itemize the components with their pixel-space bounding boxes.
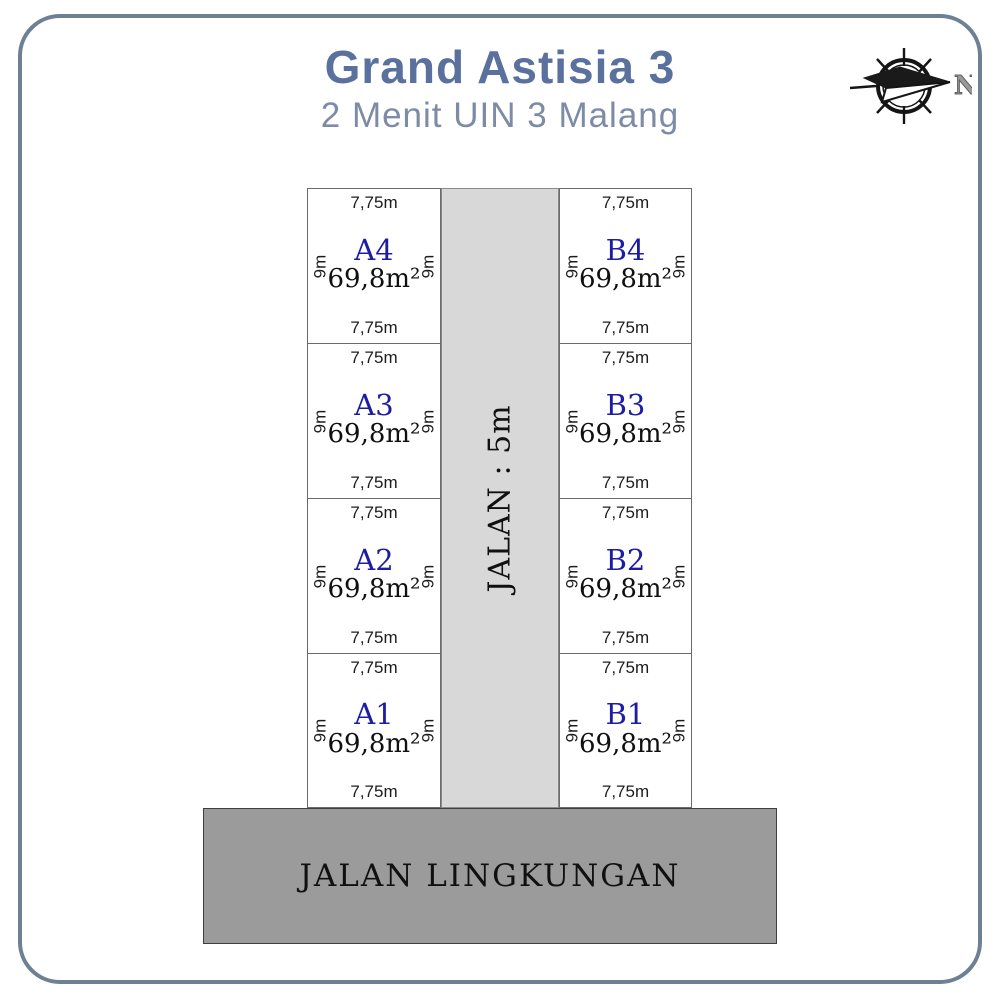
plot-depth-left: 9m <box>312 564 329 588</box>
plot-area: 69,8m² <box>328 575 421 605</box>
plot-area: 69,8m² <box>579 420 672 450</box>
plot-width-top: 7,75m <box>602 659 649 676</box>
plot-a1: 7,75m A1 69,8m² 7,75m 9m 9m <box>307 653 441 808</box>
plot-id: A1 <box>328 699 421 729</box>
plot-depth-right: 9m <box>420 409 437 433</box>
road-vertical-label: JALAN : 5m <box>483 404 518 592</box>
plot-depth-right: 9m <box>420 254 437 278</box>
plot-id: B1 <box>579 699 672 729</box>
plot-id: A4 <box>328 235 421 265</box>
plot-area: 69,8m² <box>328 265 421 295</box>
plot-id: B2 <box>579 545 672 575</box>
plot-area: 69,8m² <box>579 575 672 605</box>
plot-depth-left: 9m <box>564 409 581 433</box>
road-bottom: JALAN LINGKUNGAN <box>203 808 777 944</box>
plot-id: A3 <box>328 390 421 420</box>
plot-area: 69,8m² <box>328 420 421 450</box>
plot-id: B4 <box>579 235 672 265</box>
plot-width-bottom: 7,75m <box>350 629 397 646</box>
plot-depth-right: 9m <box>671 409 688 433</box>
plot-area: 69,8m² <box>579 265 672 295</box>
plot-area: 69,8m² <box>328 730 421 760</box>
site-plan: JALAN : 5m 7,75m A4 69,8m² 7,75m 9m 9m 7… <box>0 0 1000 1000</box>
plot-depth-left: 9m <box>312 409 329 433</box>
plot-width-top: 7,75m <box>350 504 397 521</box>
road-vertical: JALAN : 5m <box>441 188 559 808</box>
plot-width-bottom: 7,75m <box>350 783 397 800</box>
plot-id: A2 <box>328 545 421 575</box>
plot-id: B3 <box>579 390 672 420</box>
plot-depth-right: 9m <box>420 719 437 743</box>
plot-width-top: 7,75m <box>350 349 397 366</box>
plot-b3: 7,75m B3 69,8m² 7,75m 9m 9m <box>559 343 692 499</box>
plot-width-bottom: 7,75m <box>602 474 649 491</box>
road-bottom-label: JALAN LINGKUNGAN <box>299 858 680 894</box>
plot-depth-right: 9m <box>671 564 688 588</box>
plot-a3: 7,75m A3 69,8m² 7,75m 9m 9m <box>307 343 441 499</box>
plot-width-bottom: 7,75m <box>602 629 649 646</box>
plot-width-top: 7,75m <box>602 194 649 211</box>
plot-area: 69,8m² <box>579 730 672 760</box>
plot-depth-right: 9m <box>420 564 437 588</box>
plot-width-top: 7,75m <box>350 194 397 211</box>
plot-depth-left: 9m <box>564 719 581 743</box>
plot-depth-right: 9m <box>671 254 688 278</box>
plot-depth-right: 9m <box>671 719 688 743</box>
plot-depth-left: 9m <box>564 564 581 588</box>
plot-b2: 7,75m B2 69,8m² 7,75m 9m 9m <box>559 498 692 654</box>
plot-width-bottom: 7,75m <box>602 783 649 800</box>
plot-width-bottom: 7,75m <box>602 319 649 336</box>
plot-depth-left: 9m <box>312 719 329 743</box>
plot-width-bottom: 7,75m <box>350 474 397 491</box>
plot-b1: 7,75m B1 69,8m² 7,75m 9m 9m <box>559 653 692 808</box>
plot-width-top: 7,75m <box>602 504 649 521</box>
plot-a2: 7,75m A2 69,8m² 7,75m 9m 9m <box>307 498 441 654</box>
plot-b4: 7,75m B4 69,8m² 7,75m 9m 9m <box>559 188 692 344</box>
plot-width-bottom: 7,75m <box>350 319 397 336</box>
plot-depth-left: 9m <box>312 254 329 278</box>
plot-depth-left: 9m <box>564 254 581 278</box>
plot-width-top: 7,75m <box>602 349 649 366</box>
plot-width-top: 7,75m <box>350 659 397 676</box>
plot-a4: 7,75m A4 69,8m² 7,75m 9m 9m <box>307 188 441 344</box>
